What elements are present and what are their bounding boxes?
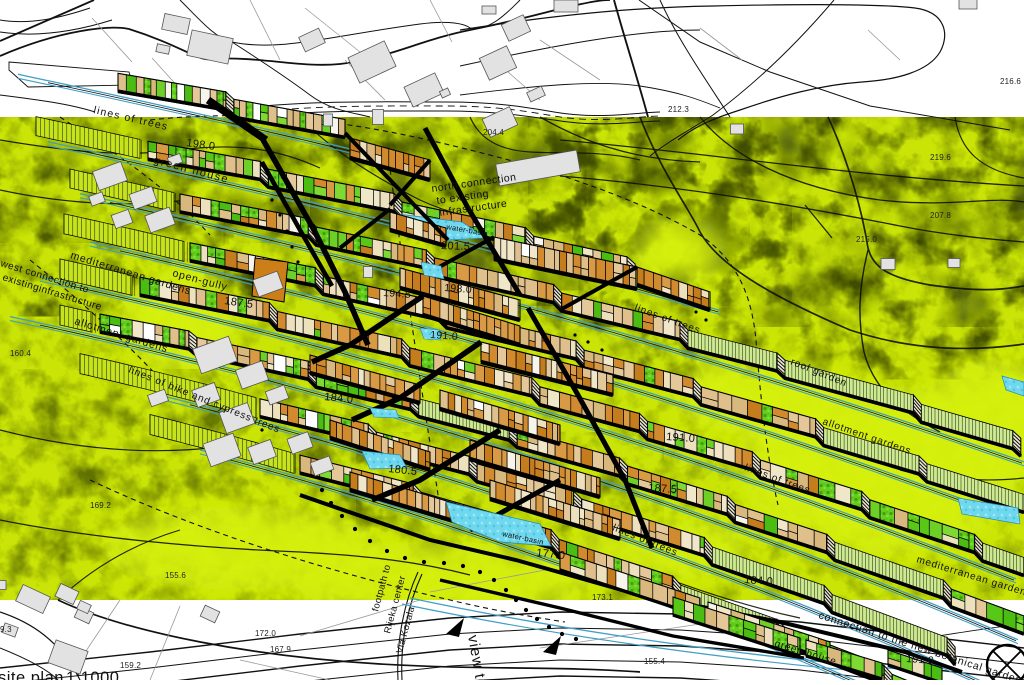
svg-text:191.0: 191.0 <box>666 431 696 445</box>
svg-text:207.8: 207.8 <box>930 211 951 220</box>
svg-text:173.1: 173.1 <box>592 593 613 602</box>
svg-text:216.6: 216.6 <box>1000 77 1021 86</box>
svg-text:167.9: 167.9 <box>270 645 291 654</box>
svg-text:198.0: 198.0 <box>444 282 473 296</box>
svg-text:site plan: site plan <box>0 669 64 680</box>
svg-text:159.2: 159.2 <box>120 661 141 670</box>
svg-text:219.6: 219.6 <box>930 153 951 162</box>
svg-text:212.3: 212.3 <box>668 105 689 114</box>
svg-text:187.5: 187.5 <box>648 482 678 496</box>
svg-text:9.3: 9.3 <box>0 625 12 634</box>
svg-text:215.0: 215.0 <box>856 235 877 244</box>
svg-text:184.0: 184.0 <box>744 574 774 588</box>
svg-text:155.4: 155.4 <box>644 657 665 666</box>
svg-text:169.2: 169.2 <box>90 501 111 510</box>
svg-text:view to: view to <box>464 634 490 680</box>
svg-text:155.6: 155.6 <box>165 571 186 580</box>
svg-text:194.5: 194.5 <box>383 287 412 301</box>
svg-text:172.0: 172.0 <box>255 629 276 638</box>
svg-text:160.4: 160.4 <box>10 349 31 358</box>
svg-text:204.4: 204.4 <box>483 128 504 137</box>
svg-text:201.5: 201.5 <box>441 240 470 253</box>
svg-text:191.0: 191.0 <box>430 329 459 343</box>
svg-text:1:1000: 1:1000 <box>66 669 119 680</box>
